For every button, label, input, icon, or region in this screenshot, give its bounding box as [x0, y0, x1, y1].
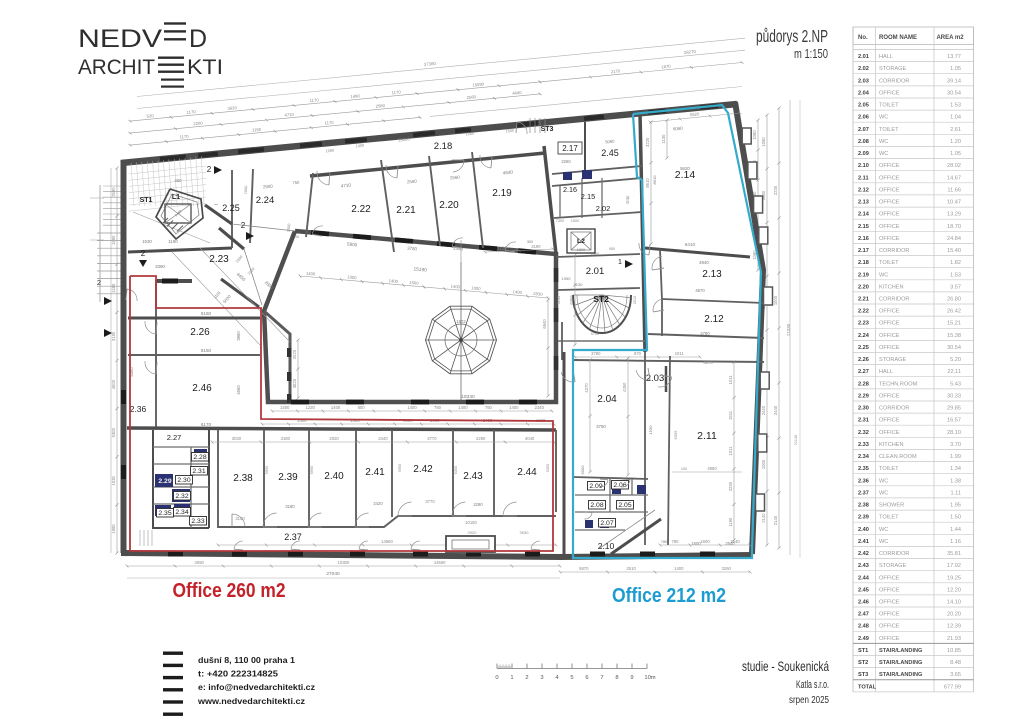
svg-text:12.39: 12.39	[947, 624, 961, 630]
svg-text:TOILET: TOILET	[879, 260, 899, 266]
svg-text:1011: 1011	[728, 446, 733, 456]
svg-text:1190: 1190	[252, 127, 262, 133]
svg-text:750: 750	[292, 180, 300, 186]
svg-text:4350: 4350	[622, 382, 627, 392]
svg-text:CORRIDOR: CORRIDOR	[879, 78, 909, 84]
svg-text:1190: 1190	[728, 517, 733, 527]
svg-text:10.85: 10.85	[947, 648, 961, 654]
svg-text:2.30: 2.30	[858, 406, 869, 412]
svg-text:5300: 5300	[111, 427, 116, 437]
svg-text:ST2: ST2	[858, 660, 868, 666]
svg-text:2510: 2510	[627, 566, 637, 571]
svg-text:2.17: 2.17	[562, 144, 578, 153]
svg-text:L1: L1	[172, 194, 180, 201]
svg-text:2.11: 2.11	[858, 175, 869, 181]
svg-text:2.20: 2.20	[439, 200, 459, 211]
svg-text:2.42: 2.42	[413, 464, 433, 475]
svg-text:780: 780	[672, 539, 680, 544]
svg-text:2.38: 2.38	[858, 503, 869, 509]
svg-text:1170: 1170	[391, 89, 401, 95]
svg-text:11.66: 11.66	[947, 187, 961, 193]
svg-text:1600: 1600	[700, 539, 710, 544]
svg-text:L2: L2	[577, 238, 585, 245]
svg-text:3780: 3780	[591, 351, 601, 356]
svg-text:3820: 3820	[292, 378, 297, 388]
svg-text:1011: 1011	[728, 375, 733, 385]
svg-text:5060: 5060	[605, 139, 615, 145]
svg-text:3.57: 3.57	[950, 284, 961, 290]
svg-text:2.02: 2.02	[858, 66, 869, 72]
svg-text:1170: 1170	[179, 134, 189, 140]
svg-text:WC: WC	[879, 478, 888, 484]
svg-text:8610: 8610	[652, 175, 657, 185]
svg-text:5950: 5950	[309, 465, 314, 474]
svg-text:1080: 1080	[752, 130, 757, 140]
svg-text:2260: 2260	[561, 159, 571, 164]
svg-text:OFFICE: OFFICE	[879, 418, 900, 424]
svg-text:2.28: 2.28	[193, 454, 206, 461]
svg-text:STAIR/LANDING: STAIR/LANDING	[879, 672, 922, 678]
svg-text:2.15: 2.15	[581, 192, 595, 201]
svg-text:2.39: 2.39	[858, 515, 869, 521]
svg-text:CORRIDOR: CORRIDOR	[879, 248, 909, 254]
svg-text:OFFICE: OFFICE	[879, 430, 900, 436]
svg-text:CORRIDOR: CORRIDOR	[879, 406, 909, 412]
svg-text:2.29: 2.29	[858, 394, 869, 400]
svg-text:3190: 3190	[111, 331, 116, 341]
svg-text:3930: 3930	[520, 530, 530, 535]
svg-text:SHOWER: SHOWER	[879, 503, 904, 509]
svg-text:13.29: 13.29	[947, 212, 961, 218]
svg-text:1870: 1870	[661, 64, 671, 70]
svg-text:15190: 15190	[413, 266, 427, 273]
svg-text:NEDV: NEDV	[78, 25, 162, 53]
svg-text:5.43: 5.43	[950, 381, 961, 387]
svg-text:2440: 2440	[761, 405, 766, 415]
svg-text:6060: 6060	[673, 126, 684, 132]
svg-text:2.09: 2.09	[858, 151, 869, 157]
svg-text:750: 750	[485, 405, 493, 410]
svg-text:0: 0	[495, 675, 498, 681]
svg-text:2.44: 2.44	[517, 467, 537, 478]
svg-text:5300: 5300	[545, 463, 550, 472]
svg-text:1590: 1590	[111, 235, 116, 245]
svg-text:2.37: 2.37	[858, 490, 869, 496]
svg-text:2.41: 2.41	[858, 539, 869, 545]
svg-text:2.01: 2.01	[586, 266, 605, 277]
svg-text:2.17: 2.17	[858, 248, 869, 254]
svg-text:22.11: 22.11	[947, 369, 961, 375]
svg-text:4870: 4870	[695, 288, 705, 293]
svg-text:1.53: 1.53	[950, 103, 961, 109]
svg-text:2: 2	[141, 249, 146, 258]
svg-text:2.13: 2.13	[858, 200, 869, 206]
svg-text:2.21: 2.21	[858, 297, 869, 303]
svg-text:2.32: 2.32	[858, 430, 869, 436]
svg-text:1000: 1000	[465, 131, 475, 137]
svg-text:2.12: 2.12	[704, 314, 724, 325]
svg-text:1400: 1400	[280, 405, 290, 410]
svg-text:1530: 1530	[648, 425, 653, 435]
svg-text:OFFICE: OFFICE	[879, 345, 900, 351]
svg-text:2.41: 2.41	[365, 467, 385, 478]
svg-text:1220: 1220	[306, 405, 316, 410]
svg-text:2.05: 2.05	[618, 502, 631, 509]
svg-text:2540: 2540	[730, 539, 740, 544]
svg-text:100: 100	[681, 467, 687, 471]
svg-text:2020: 2020	[329, 436, 339, 441]
svg-text:TOILET: TOILET	[879, 103, 899, 109]
svg-text:14.67: 14.67	[947, 175, 961, 181]
svg-text:18330: 18330	[461, 394, 475, 400]
svg-text:2.32: 2.32	[175, 493, 188, 500]
svg-text:2.27: 2.27	[858, 369, 869, 375]
svg-text:2170: 2170	[611, 68, 621, 74]
svg-text:2.47: 2.47	[858, 612, 869, 618]
svg-text:2.40: 2.40	[858, 527, 869, 533]
svg-text:1800: 1800	[577, 248, 585, 252]
svg-text:2010: 2010	[633, 296, 637, 304]
svg-text:TOILET: TOILET	[879, 515, 899, 521]
svg-text:2.33: 2.33	[858, 442, 869, 448]
svg-text:3.70: 3.70	[950, 442, 961, 448]
svg-text:2.10: 2.10	[858, 163, 869, 169]
svg-text:1: 1	[618, 259, 622, 266]
svg-text:3780: 3780	[407, 246, 418, 252]
svg-text:2.29: 2.29	[158, 478, 171, 485]
svg-text:6355: 6355	[673, 430, 678, 440]
svg-text:15.21: 15.21	[947, 321, 961, 327]
svg-text:1000: 1000	[773, 295, 778, 305]
svg-text:2.18: 2.18	[434, 141, 453, 152]
svg-text:1190: 1190	[168, 239, 178, 244]
svg-text:4600: 4600	[111, 379, 116, 389]
svg-text:4780: 4780	[700, 331, 710, 336]
svg-text:18.70: 18.70	[947, 224, 961, 230]
svg-text:OFFICE: OFFICE	[879, 212, 900, 218]
svg-text:6000: 6000	[580, 465, 585, 475]
svg-text:19.25: 19.25	[947, 575, 961, 581]
svg-text:1011: 1011	[675, 351, 685, 356]
svg-text:8.48: 8.48	[950, 660, 961, 666]
svg-text:3180: 3180	[281, 436, 291, 441]
svg-text:1530: 1530	[111, 475, 116, 485]
svg-text:STORAGE: STORAGE	[879, 357, 907, 363]
svg-text:2.18: 2.18	[858, 260, 869, 266]
svg-text:2.21: 2.21	[396, 205, 416, 216]
svg-text:WC: WC	[879, 272, 888, 278]
svg-text:1400: 1400	[388, 278, 398, 284]
svg-text:1130: 1130	[625, 195, 631, 205]
svg-text:2: 2	[207, 165, 212, 174]
svg-text:2000: 2000	[286, 223, 292, 233]
svg-text:2.46: 2.46	[858, 600, 869, 606]
svg-text:530: 530	[146, 113, 154, 119]
svg-text:2.23: 2.23	[858, 321, 869, 327]
svg-text:1602: 1602	[456, 319, 466, 324]
svg-text:2.01: 2.01	[858, 54, 869, 60]
svg-text:6150: 6150	[201, 348, 212, 353]
svg-text:4940: 4940	[699, 260, 709, 265]
svg-text:t: +420 222314825: t: +420 222314825	[198, 669, 278, 679]
svg-text:2140: 2140	[773, 515, 778, 525]
svg-text:TOILET: TOILET	[879, 466, 899, 472]
svg-text:2.13: 2.13	[702, 269, 722, 280]
svg-text:4370: 4370	[584, 383, 589, 393]
svg-text:780: 780	[661, 539, 668, 544]
svg-text:2.43: 2.43	[463, 471, 483, 482]
svg-text:14560: 14560	[381, 539, 393, 544]
svg-text:300: 300	[527, 240, 533, 244]
svg-text:www.nedvedarchitekti.cz: www.nedvedarchitekti.cz	[197, 696, 305, 706]
svg-text:2.35: 2.35	[858, 466, 869, 472]
svg-text:1400: 1400	[509, 405, 519, 410]
svg-text:870: 870	[634, 351, 642, 356]
svg-text:dušní 8, 110 00 praha 1: dušní 8, 110 00 praha 1	[198, 655, 295, 665]
svg-text:1000: 1000	[244, 186, 249, 195]
svg-text:1000: 1000	[761, 459, 766, 469]
svg-text:1.34: 1.34	[950, 466, 961, 472]
svg-text:5800: 5800	[347, 242, 358, 248]
svg-text:4710: 4710	[341, 183, 352, 189]
svg-text:10m: 10m	[644, 675, 655, 681]
svg-text:No.: No.	[858, 35, 868, 41]
svg-text:5.20: 5.20	[950, 357, 961, 363]
svg-text:ST1: ST1	[858, 648, 868, 654]
svg-text:3260: 3260	[722, 566, 732, 571]
svg-text:1490: 1490	[350, 93, 360, 99]
svg-text:1000: 1000	[471, 285, 481, 291]
svg-text:8610: 8610	[645, 178, 650, 188]
svg-text:2.31: 2.31	[858, 418, 869, 424]
svg-text:2.05: 2.05	[858, 103, 869, 109]
svg-text:1400: 1400	[674, 566, 684, 571]
svg-text:STORAGE: STORAGE	[879, 563, 907, 569]
svg-text:1400: 1400	[458, 405, 468, 410]
svg-text:2.26: 2.26	[858, 357, 869, 363]
svg-text:2.34: 2.34	[858, 454, 870, 460]
svg-text:2: 2	[97, 278, 101, 287]
svg-text:3770: 3770	[427, 436, 437, 441]
svg-text:13.77: 13.77	[947, 54, 961, 60]
svg-text:1.16: 1.16	[950, 539, 961, 545]
svg-text:2.25: 2.25	[858, 345, 869, 351]
svg-text:6: 6	[585, 675, 588, 681]
svg-text:2260: 2260	[193, 120, 203, 126]
svg-text:35.81: 35.81	[947, 551, 961, 557]
svg-text:WC: WC	[879, 139, 888, 145]
svg-text:OFFICE: OFFICE	[879, 575, 900, 581]
svg-text:1400: 1400	[355, 143, 365, 149]
svg-text:4560: 4560	[236, 385, 241, 395]
svg-text:Office 260 m2: Office 260 m2	[173, 579, 286, 602]
svg-text:1.05: 1.05	[950, 151, 961, 157]
svg-text:2.27: 2.27	[167, 433, 182, 442]
svg-text:677.99: 677.99	[944, 684, 961, 690]
svg-text:6170: 6170	[201, 422, 212, 427]
svg-text:2.39: 2.39	[278, 472, 298, 483]
svg-text:3: 3	[540, 675, 543, 681]
svg-text:2.06: 2.06	[858, 115, 869, 121]
svg-text:460: 460	[175, 178, 183, 183]
svg-text:28.02: 28.02	[947, 163, 961, 169]
svg-text:2.49: 2.49	[858, 636, 869, 642]
svg-text:2340: 2340	[535, 405, 545, 410]
svg-text:2.33: 2.33	[191, 518, 204, 525]
svg-text:1980: 1980	[111, 524, 116, 534]
svg-text:WC: WC	[879, 539, 888, 545]
svg-text:2230: 2230	[728, 481, 733, 491]
svg-text:3750: 3750	[596, 424, 606, 429]
svg-text:1400: 1400	[512, 289, 522, 295]
svg-text:STAIR/LANDING: STAIR/LANDING	[879, 648, 922, 654]
svg-text:5300: 5300	[453, 465, 458, 474]
svg-text:2.19: 2.19	[492, 188, 512, 199]
svg-text:2.07: 2.07	[600, 520, 613, 527]
svg-text:1500: 1500	[571, 219, 579, 223]
svg-text:ST3: ST3	[858, 672, 868, 678]
svg-text:ARCHIT: ARCHIT	[78, 55, 155, 79]
svg-text:OFFICE: OFFICE	[879, 333, 900, 339]
svg-text:OFFICE: OFFICE	[879, 175, 900, 181]
svg-text:2.43: 2.43	[858, 563, 869, 569]
svg-text:1170: 1170	[186, 109, 196, 115]
svg-text:Office 212 m2: Office 212 m2	[612, 584, 726, 607]
svg-text:2.19: 2.19	[858, 272, 869, 278]
svg-text:950: 950	[609, 247, 615, 251]
svg-text:Katla s.r.o.: Katla s.r.o.	[796, 679, 829, 691]
svg-text:1.04: 1.04	[950, 115, 961, 121]
svg-text:6150: 6150	[201, 311, 212, 316]
svg-text:TOILET: TOILET	[879, 127, 899, 133]
svg-text:1130: 1130	[661, 134, 666, 144]
svg-text:WC: WC	[879, 151, 888, 157]
svg-text:D: D	[189, 25, 207, 53]
svg-text:1080: 1080	[761, 137, 766, 147]
svg-text:5870: 5870	[579, 566, 589, 571]
svg-text:2.10: 2.10	[598, 541, 615, 551]
svg-text:2.34: 2.34	[175, 509, 188, 516]
svg-text:OFFICE: OFFICE	[879, 224, 900, 230]
svg-text:2440: 2440	[773, 405, 778, 415]
svg-text:OFFICE: OFFICE	[879, 636, 900, 642]
svg-text:2.24: 2.24	[256, 195, 275, 206]
svg-text:1511: 1511	[728, 410, 733, 420]
svg-text:OFFICE: OFFICE	[879, 200, 900, 206]
svg-text:2.08: 2.08	[590, 502, 603, 509]
svg-text:30.54: 30.54	[947, 91, 961, 97]
svg-text:2.07: 2.07	[858, 127, 869, 133]
svg-text:2020: 2020	[292, 349, 297, 359]
svg-text:STAIR/LANDING: STAIR/LANDING	[879, 660, 922, 666]
svg-text:2.36: 2.36	[130, 404, 147, 414]
svg-text:1.11: 1.11	[951, 490, 961, 496]
svg-text:WC: WC	[879, 115, 888, 121]
svg-text:2.48: 2.48	[858, 624, 869, 630]
svg-text:7: 7	[600, 675, 603, 681]
svg-text:39.14: 39.14	[947, 78, 961, 84]
svg-text:1.53: 1.53	[950, 272, 961, 278]
svg-text:1.50: 1.50	[950, 515, 961, 521]
svg-text:2.46: 2.46	[192, 383, 212, 394]
svg-text:1.95: 1.95	[950, 503, 961, 509]
svg-text:2: 2	[525, 675, 528, 681]
svg-text:OFFICE: OFFICE	[879, 612, 900, 618]
svg-text:29.85: 29.85	[947, 406, 961, 412]
svg-text:2: 2	[241, 221, 246, 230]
svg-text:2440: 2440	[378, 436, 388, 441]
svg-text:2290: 2290	[473, 502, 483, 507]
svg-text:3770: 3770	[425, 499, 435, 504]
svg-text:5620: 5620	[690, 111, 700, 117]
svg-text:STORAGE: STORAGE	[879, 66, 907, 72]
svg-text:2920: 2920	[468, 530, 478, 535]
svg-text:1500: 1500	[409, 280, 419, 286]
svg-text:2.04: 2.04	[858, 91, 870, 97]
svg-text:2.44: 2.44	[858, 575, 870, 581]
svg-text:14560: 14560	[434, 560, 446, 565]
svg-text:OFFICE: OFFICE	[879, 309, 900, 315]
svg-text:3960: 3960	[236, 331, 241, 341]
svg-text:1: 1	[510, 675, 513, 681]
svg-text:2.06: 2.06	[613, 482, 626, 489]
svg-text:AREA m2: AREA m2	[936, 35, 964, 41]
svg-text:3.65: 3.65	[950, 672, 961, 678]
svg-text:6940: 6940	[542, 319, 547, 329]
svg-text:TOTAL: TOTAL	[858, 684, 877, 690]
svg-text:2.09: 2.09	[589, 483, 602, 490]
svg-text:3190: 3190	[531, 244, 541, 249]
svg-text:3180: 3180	[285, 504, 295, 509]
svg-text:2.22: 2.22	[351, 204, 371, 215]
svg-text:20.20: 20.20	[947, 612, 961, 618]
svg-text:2.45: 2.45	[601, 148, 619, 158]
svg-text:2.14: 2.14	[858, 212, 870, 218]
svg-text:2420: 2420	[373, 501, 383, 506]
svg-text:WC: WC	[879, 527, 888, 533]
svg-text:2.16: 2.16	[858, 236, 869, 242]
svg-text:WC: WC	[879, 490, 888, 496]
svg-text:2830: 2830	[533, 291, 543, 297]
svg-text:2.02: 2.02	[596, 204, 610, 213]
svg-text:750: 750	[434, 405, 442, 410]
svg-text:5620: 5620	[680, 166, 690, 171]
svg-text:2230: 2230	[773, 185, 778, 195]
svg-text:2.08: 2.08	[858, 139, 869, 145]
svg-text:OFFICE: OFFICE	[879, 187, 900, 193]
svg-text:2.16: 2.16	[563, 185, 577, 194]
svg-text:CLEAN.ROOM: CLEAN.ROOM	[879, 454, 917, 460]
svg-text:2290: 2290	[476, 436, 486, 441]
svg-text:1950: 1950	[562, 276, 572, 281]
svg-text:HALL: HALL	[879, 54, 893, 60]
svg-text:1090: 1090	[325, 148, 335, 154]
svg-text:2.31: 2.31	[192, 468, 205, 475]
svg-text:2.20: 2.20	[858, 284, 869, 290]
svg-text:2.04: 2.04	[597, 394, 617, 405]
svg-text:1170: 1170	[324, 120, 334, 126]
svg-text:ST3: ST3	[541, 126, 554, 133]
svg-text:26.42: 26.42	[947, 309, 961, 315]
svg-text:2.38: 2.38	[233, 473, 253, 484]
svg-text:2.22: 2.22	[858, 309, 869, 315]
svg-text:OFFICE: OFFICE	[879, 163, 900, 169]
svg-text:OFFICE: OFFICE	[879, 321, 900, 327]
svg-text:10300: 10300	[338, 560, 350, 565]
svg-text:800: 800	[358, 405, 366, 410]
svg-text:ST1: ST1	[140, 197, 153, 204]
svg-text:28.10: 28.10	[947, 430, 961, 436]
